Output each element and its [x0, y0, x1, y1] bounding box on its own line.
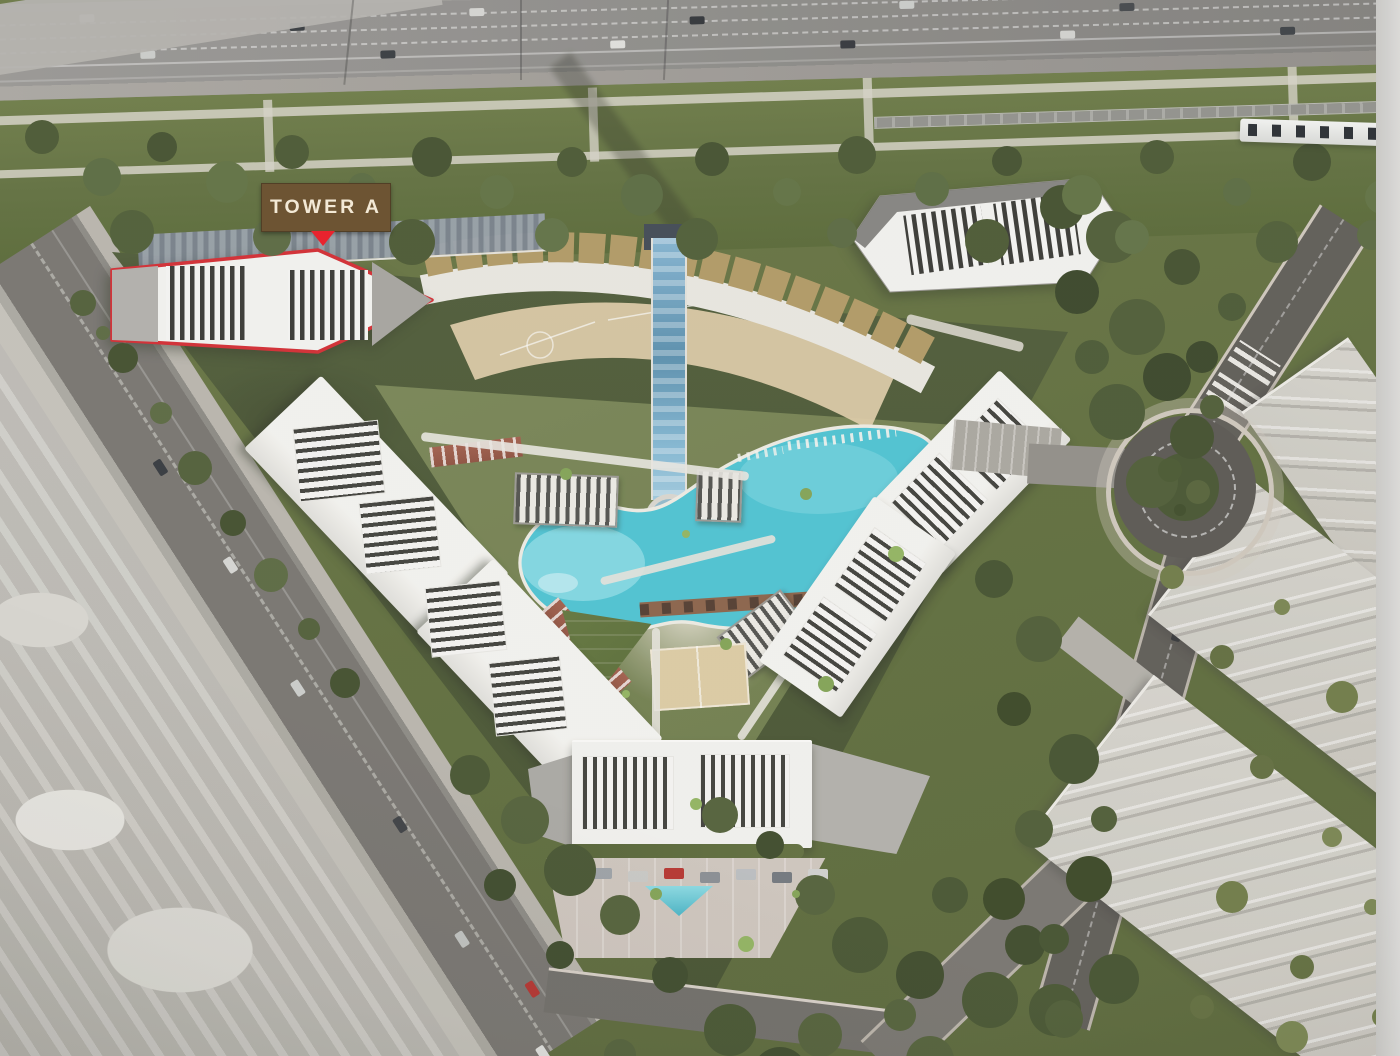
roundabout-lane-marking — [1138, 440, 1236, 538]
tree-row-west — [70, 290, 96, 316]
tree-cluster-east — [975, 560, 1013, 598]
multipurpose-court — [650, 643, 750, 712]
pole-shadow — [520, 0, 522, 80]
walkway — [652, 628, 660, 743]
tree-cluster-south — [450, 755, 490, 795]
park-path-lower — [0, 125, 1400, 179]
crosswalk — [1227, 340, 1280, 386]
tower-a-marker[interactable]: TOWER A — [261, 183, 391, 232]
tree-row-park — [25, 120, 59, 154]
roof-louver-panel — [488, 655, 567, 736]
image-edge-strip — [1376, 0, 1400, 1056]
tram-vehicle — [1240, 119, 1395, 147]
tower-northeast — [835, 158, 1135, 308]
aerial-site-plan: TOWER A — [0, 0, 1400, 1056]
roof-louver-panel — [425, 580, 508, 658]
tree-cluster-city — [1160, 565, 1184, 589]
beach-entry — [538, 573, 578, 593]
hedge-row — [566, 844, 804, 859]
pool-shallow-area — [521, 525, 645, 601]
tower-a-marker-label: TOWER A — [270, 196, 382, 219]
roof-louver-panel — [782, 596, 877, 693]
pergola-louvered — [513, 472, 619, 528]
roof-louver-panel — [582, 756, 674, 830]
roof-louver-panel — [700, 754, 790, 828]
roof-louver-panel — [903, 205, 989, 275]
tower-a-roof-gray — [112, 266, 158, 342]
parked-cars — [592, 868, 612, 879]
marker-pointer-icon — [311, 231, 335, 246]
roundabout-island-trees — [1158, 458, 1182, 482]
roof-louver-panel — [166, 266, 246, 340]
road-cars — [152, 458, 168, 476]
tower-a-building[interactable] — [100, 238, 445, 360]
tram-windows — [1248, 124, 1384, 140]
tower-a-roof-tip — [372, 262, 432, 346]
roof-louver-panel — [288, 270, 368, 340]
roof-louver-panel — [292, 420, 385, 503]
courtyard-palms — [560, 468, 572, 480]
aerial-photo-layer — [0, 0, 1400, 1056]
roof-louver-panel — [833, 527, 927, 623]
roof-louver-panel — [358, 495, 441, 575]
tree-cluster-northeast — [1040, 185, 1084, 229]
